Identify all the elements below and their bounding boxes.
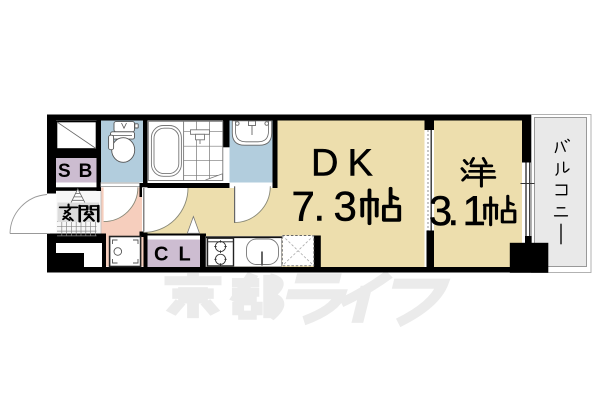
svg-text:7.3: 7.3	[292, 183, 357, 230]
svg-text:CL: CL	[154, 244, 201, 266]
svg-text:3.1: 3.1	[429, 187, 486, 234]
svg-text:SB: SB	[58, 161, 100, 182]
svg-text:DK: DK	[311, 143, 382, 185]
